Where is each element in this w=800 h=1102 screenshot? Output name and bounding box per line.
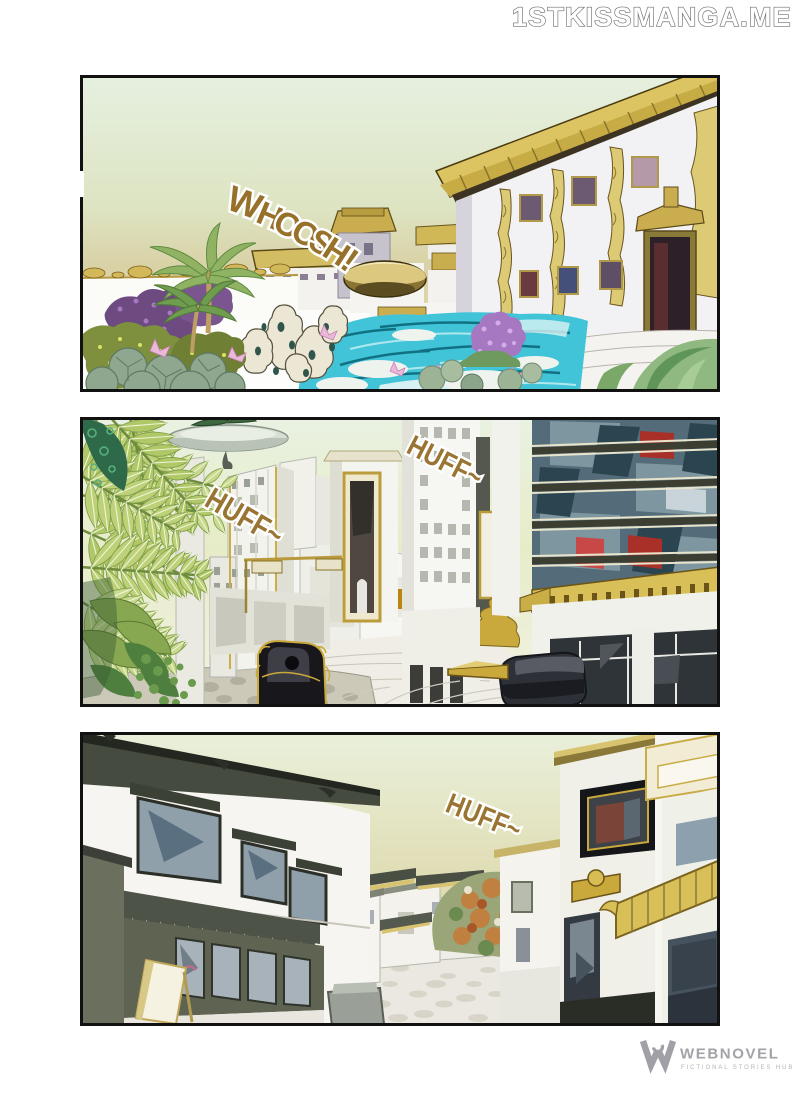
svg-text:WEBNOVEL: WEBNOVEL <box>680 1046 779 1063</box>
svg-text:FICTIONAL STORIES HUB: FICTIONAL STORIES HUB <box>681 1065 794 1071</box>
svg-text:1STKISSMANGA.ME: 1STKISSMANGA.ME <box>512 2 792 32</box>
